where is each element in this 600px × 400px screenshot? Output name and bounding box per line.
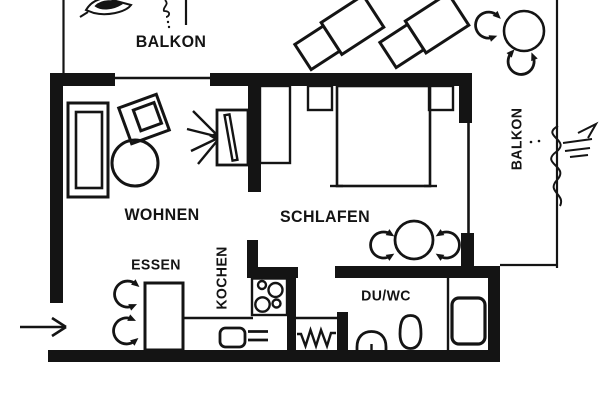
- nightstand: [308, 86, 332, 110]
- nightstand: [429, 86, 453, 110]
- chair-icon: [473, 10, 498, 40]
- chair-icon: [113, 279, 136, 308]
- label-kitchen: KOCHEN: [214, 246, 231, 309]
- label-balcony-top: BALKON: [136, 32, 207, 52]
- wall-left: [50, 73, 63, 303]
- wardrobe: [260, 86, 290, 163]
- chair-icon: [371, 232, 391, 258]
- bedroom-table: [395, 221, 433, 259]
- dining-table: [145, 283, 183, 350]
- armchair: [119, 94, 170, 143]
- plant-sketch-right: [530, 124, 596, 206]
- bathroom-fixtures: [357, 298, 485, 351]
- chair-icon: [440, 232, 460, 258]
- entrance-arrow-icon: [20, 318, 66, 336]
- label-bedroom: SCHLAFEN: [280, 207, 370, 227]
- lounger-chair: [293, 0, 384, 73]
- label-bathroom: DU/WC: [361, 288, 411, 305]
- wall-kitchen-right: [287, 276, 296, 354]
- chair-icon: [112, 317, 135, 346]
- tv-icon: [187, 110, 248, 165]
- lounger-chair: [378, 0, 469, 71]
- wall-bath-stub: [337, 312, 348, 354]
- wall-bottom: [48, 350, 500, 362]
- wall-bedroom-bottom: [335, 266, 500, 278]
- living-room-furniture: [68, 94, 248, 197]
- walls: [48, 73, 500, 362]
- balcony-table: [504, 11, 544, 51]
- bed: [337, 86, 430, 186]
- toilet-icon: [400, 316, 421, 349]
- wall-right-lower: [488, 274, 500, 362]
- round-table: [112, 140, 158, 186]
- wall-right-stub: [461, 233, 474, 269]
- radiator-icon: [296, 318, 337, 346]
- balcony-top-furniture: [293, 0, 544, 76]
- bedroom-furniture: [260, 86, 459, 259]
- stove-icon: [252, 279, 287, 316]
- chair-icon: [506, 52, 535, 76]
- label-balcony-right: BALKON: [509, 108, 526, 171]
- floor-plan-drawing: [0, 0, 600, 400]
- sofa: [68, 103, 108, 197]
- sink-icon: [220, 328, 245, 347]
- floor-plan: BALKON BALKON WOHNEN SCHLAFEN ESSEN KOCH…: [0, 0, 600, 400]
- label-dining-area: ESSEN: [131, 257, 181, 274]
- label-living-room: WOHNEN: [124, 205, 199, 225]
- shower-tray-icon: [452, 298, 485, 344]
- wall-right-upper: [459, 80, 472, 123]
- plant-sketch-top-left: [80, 0, 170, 28]
